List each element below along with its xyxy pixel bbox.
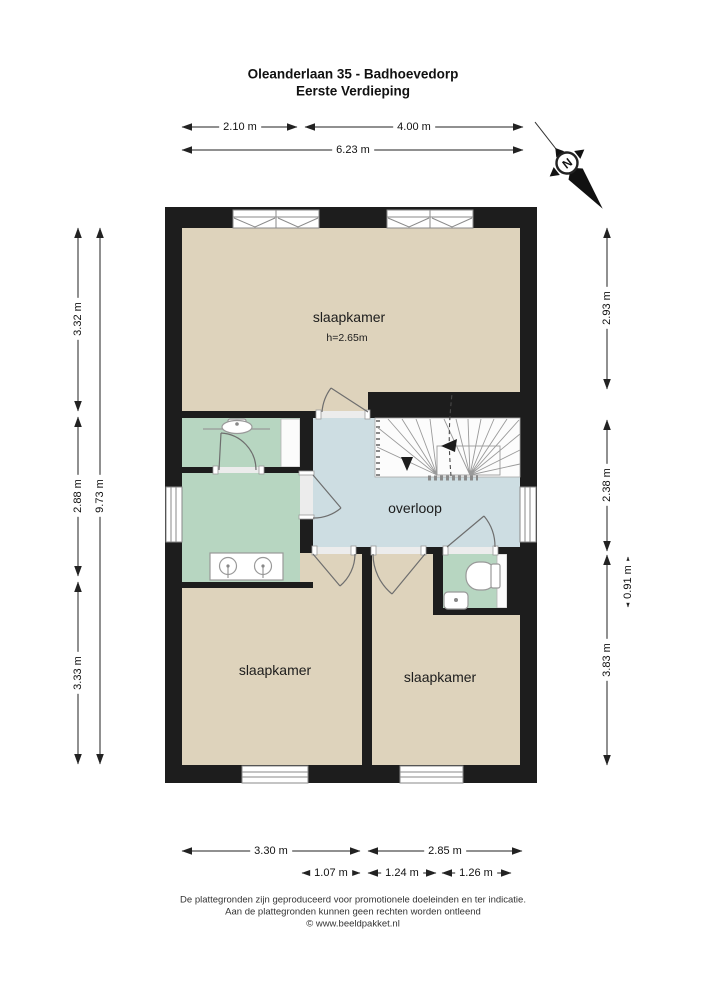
dimension-label-d383: 3.83 m bbox=[601, 639, 613, 681]
toilet-basin-fixture bbox=[444, 592, 468, 609]
room-label-slaapkamer-top: slaapkamer bbox=[313, 309, 385, 325]
room-label-slaapkamer-right: slaapkamer bbox=[404, 669, 476, 685]
dimension-label-d623: 6.23 m bbox=[332, 144, 374, 156]
room-label-slaapkamer-left: slaapkamer bbox=[239, 662, 311, 678]
dimension-label-d126: 1.26 m bbox=[455, 867, 497, 879]
double-basin-fixture bbox=[210, 553, 283, 580]
footer-disclaimer-2: Aan de plattegronden kunnen geen rechten… bbox=[225, 907, 481, 918]
dimension-label-d293: 2.93 m bbox=[601, 287, 613, 329]
footer-disclaimer-1: De plattegronden zijn geproduceerd voor … bbox=[180, 895, 526, 906]
dimension-label-d124: 1.24 m bbox=[381, 867, 423, 879]
dimension-label-d288: 2.88 m bbox=[72, 475, 84, 517]
room-label-overloop: overloop bbox=[388, 500, 442, 516]
dimension-label-d400: 4.00 m bbox=[393, 121, 435, 133]
dimension-label-d332: 3.32 m bbox=[72, 298, 84, 340]
dimension-label-d330: 3.30 m bbox=[250, 845, 292, 857]
floorplan-page: Oleanderlaan 35 - Badhoevedorp Eerste Ve… bbox=[0, 0, 707, 1000]
dimension-label-d210: 2.10 m bbox=[219, 121, 261, 133]
footer-copyright: © www.beeldpakket.nl bbox=[306, 919, 400, 930]
toilet-fixture bbox=[466, 562, 500, 590]
window-right bbox=[520, 487, 536, 542]
window-bottom-left bbox=[242, 766, 308, 783]
dimension-label-d285: 2.85 m bbox=[424, 845, 466, 857]
dimension-label-d238: 2.38 m bbox=[601, 464, 613, 506]
dimension-label-d333: 3.33 m bbox=[72, 652, 84, 694]
shower-area bbox=[281, 419, 300, 467]
window-bottom-right bbox=[400, 766, 463, 783]
dimension-label-d973: 9.73 m bbox=[94, 475, 106, 517]
window-top-left bbox=[233, 210, 319, 228]
dimension-label-d091: 0.91 m bbox=[622, 561, 634, 603]
window-left bbox=[166, 487, 182, 542]
room-height-note: h=2.65m bbox=[326, 332, 367, 344]
dimension-label-d107: 1.07 m bbox=[310, 867, 352, 879]
window-top-right bbox=[387, 210, 473, 228]
north-arrow-icon: N bbox=[518, 108, 620, 222]
